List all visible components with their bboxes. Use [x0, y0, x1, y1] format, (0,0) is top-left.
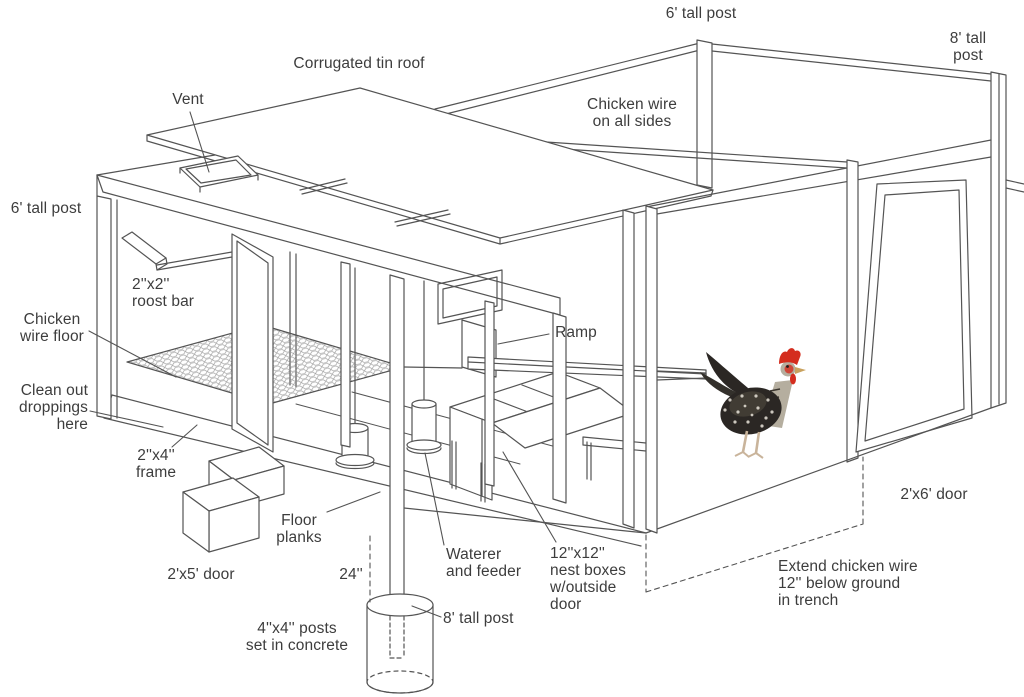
- front-stud-2: [485, 301, 494, 486]
- leader-waterer: [425, 453, 444, 545]
- label-6ft-post-top: 6' tall post: [666, 5, 737, 22]
- chicken-wattle: [790, 374, 796, 385]
- run-corner-post-b: [646, 206, 657, 533]
- nest-boxes: [450, 372, 646, 502]
- run-ground-edge: [646, 408, 991, 533]
- roost-bar: [122, 232, 232, 270]
- leader-frame: [172, 425, 197, 447]
- coop-door-2x5: [232, 234, 273, 452]
- chicken-beak: [795, 367, 806, 374]
- label-2x4-frame: 2''x4'' frame: [136, 447, 176, 481]
- floor-edge: [404, 367, 462, 368]
- label-8ft-post-bottom: 8' tall post: [443, 610, 514, 627]
- label-6ft-post-left: 6' tall post: [11, 200, 82, 217]
- label-roof: Corrugated tin roof: [293, 55, 424, 72]
- chicken-eye: [786, 365, 789, 368]
- chicken-legs: [735, 431, 763, 458]
- concrete-footing: [367, 594, 433, 693]
- label-trench: Extend chicken wire 12'' below ground in…: [778, 558, 918, 609]
- label-wire-sides: Chicken wire on all sides: [587, 96, 677, 130]
- label-wire-floor: Chicken wire floor: [20, 311, 84, 345]
- chicken-coop-diagram: 6' tall post 8' tall post Corrugated tin…: [0, 0, 1024, 697]
- label-floor-planks: Floor planks: [276, 512, 321, 546]
- center-8ft-post: [390, 275, 404, 603]
- leader-clean-out: [90, 411, 163, 427]
- run-corner-post-a: [623, 210, 634, 528]
- label-clean-out: Clean out droppings here: [19, 382, 88, 433]
- left-6ft-post: [97, 196, 111, 419]
- label-waterer-feeder: Waterer and feeder: [446, 546, 521, 580]
- label-24in: 24'': [339, 566, 363, 583]
- label-2x6-door: 2'x6' door: [900, 486, 967, 503]
- run-back-post: [697, 40, 712, 188]
- coop-right-post: [553, 313, 566, 503]
- nest-box-perch: [583, 437, 646, 451]
- leader-ramp: [498, 334, 549, 344]
- run-frame: [435, 40, 1024, 592]
- label-ramp: Ramp: [555, 324, 597, 341]
- feeder: [407, 400, 441, 454]
- label-8ft-post-top: 8' tall post: [940, 30, 996, 64]
- door-jamb-post: [847, 160, 858, 462]
- leader-floor-planks: [327, 492, 380, 512]
- label-nest-boxes: 12''x12'' nest boxes w/outside door: [550, 545, 626, 613]
- front-stud: [341, 262, 350, 447]
- label-posts-concrete: 4''x4'' posts set in concrete: [246, 620, 348, 654]
- label-2x5-door: 2'x5' door: [167, 566, 234, 583]
- leader-nest-boxes: [503, 452, 556, 542]
- label-roost-bar: 2''x2'' roost bar: [132, 276, 194, 310]
- entry-steps: [183, 447, 284, 552]
- label-vent: Vent: [172, 91, 203, 108]
- chicken: [700, 348, 806, 458]
